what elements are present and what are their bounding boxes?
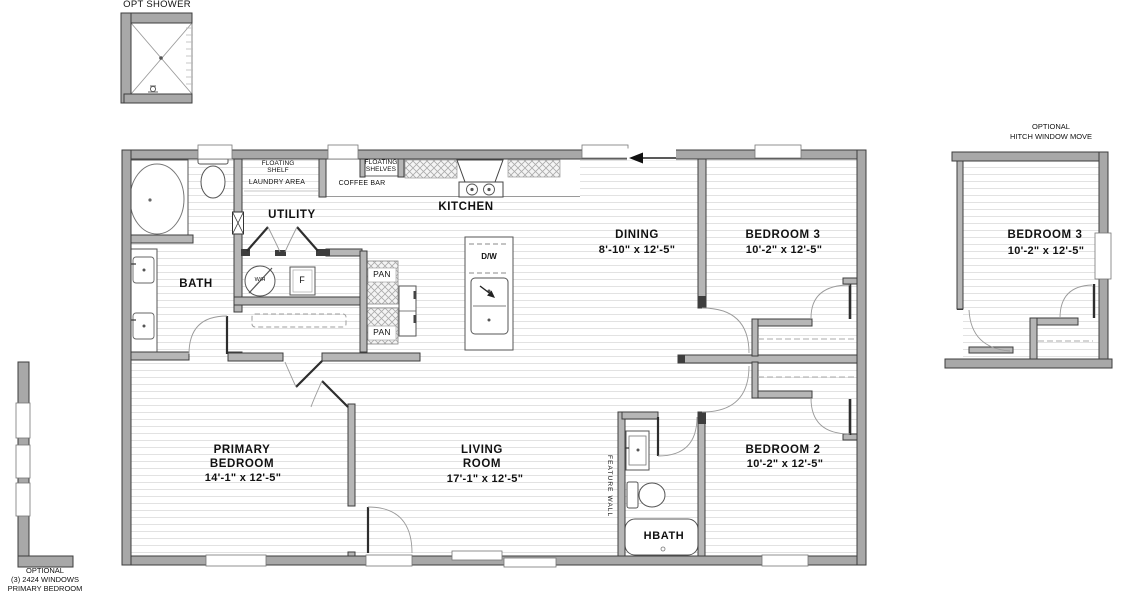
room-dims-primary: 14'-1" x 12'-5" (205, 473, 281, 485)
sliding-door-panel (452, 551, 502, 560)
hbath-vanity (624, 431, 649, 470)
hitch-label-2: HITCH WINDOW MOVE (1010, 133, 1092, 141)
pantry-label-1: PAN (373, 270, 391, 279)
room-label-bedroom3: BEDROOM 3 (745, 229, 820, 241)
hitch-label-1: OPTIONAL (1032, 123, 1070, 131)
optional-windows-label-2: (3) 2424 WINDOWS (11, 576, 79, 584)
opt-shower-detail (121, 13, 193, 103)
room-label-bedroom2: BEDROOM 2 (745, 444, 820, 456)
moved-window (1095, 233, 1111, 279)
laundry-area-label: LAUNDRY AREA (249, 179, 305, 186)
refrigerator-icon (399, 286, 417, 336)
room-label-primary-1: PRIMARY (214, 444, 271, 456)
sliding-door-panel (504, 558, 556, 567)
room-dims-bedroom2: 10'-2" x 12'-5" (747, 459, 823, 471)
hitch-bedroom3-label: BEDROOM 3 (1007, 229, 1082, 241)
floorplan-graphics (0, 0, 1144, 600)
room-label-living-1: LIVING (461, 444, 503, 456)
optional-windows-label-1: OPTIONAL (26, 567, 64, 575)
pantry-label-2: PAN (373, 328, 391, 337)
coffee-bar-label: COFFEE BAR (339, 180, 386, 187)
hitch-bedroom3-dims: 10'-2" x 12'-5" (1008, 246, 1084, 258)
room-label-primary-2: BEDROOM (210, 458, 274, 470)
furnace-label: F (299, 276, 305, 285)
range-icon (457, 160, 503, 197)
window (16, 483, 30, 516)
room-label-kitchen: KITCHEN (438, 201, 493, 213)
optional-windows-detail (16, 362, 73, 567)
room-label-living-2: ROOM (463, 458, 501, 470)
window (755, 145, 801, 158)
window (762, 555, 808, 566)
feature-wall-label: FEATURE WALL (605, 455, 612, 517)
room-label-utility: UTILITY (268, 209, 316, 221)
optional-windows-label-3: PRIMARY BEDROOM (8, 585, 83, 593)
floorplan-canvas: OPT SHOWER BATH UTILITY KITCHEN DINING 8… (0, 0, 1144, 600)
tub-icon (126, 160, 188, 238)
window (16, 445, 30, 478)
toilet-icon (627, 482, 665, 508)
window (366, 555, 412, 566)
window (16, 403, 30, 438)
window (582, 145, 628, 158)
double-vanity (130, 249, 157, 352)
floating-shelf-label-2: SHELF (267, 168, 288, 175)
window (206, 555, 266, 566)
dishwasher-label: D/W (481, 253, 497, 261)
opt-shower-label: OPT SHOWER (123, 0, 191, 10)
window (198, 145, 232, 159)
room-label-bath: BATH (179, 278, 213, 290)
room-label-hbath: HBATH (644, 531, 685, 543)
floating-shelves-label-2: SHELVES (366, 167, 396, 174)
room-dims-living: 17'-1" x 12'-5" (447, 474, 523, 486)
room-dims-bedroom3: 10'-2" x 12'-5" (746, 245, 822, 257)
water-heater-label: W/H (255, 278, 266, 284)
window (328, 145, 358, 159)
room-label-dining: DINING (615, 229, 659, 241)
room-dims-dining: 8'-10" x 12'-5" (599, 245, 675, 257)
